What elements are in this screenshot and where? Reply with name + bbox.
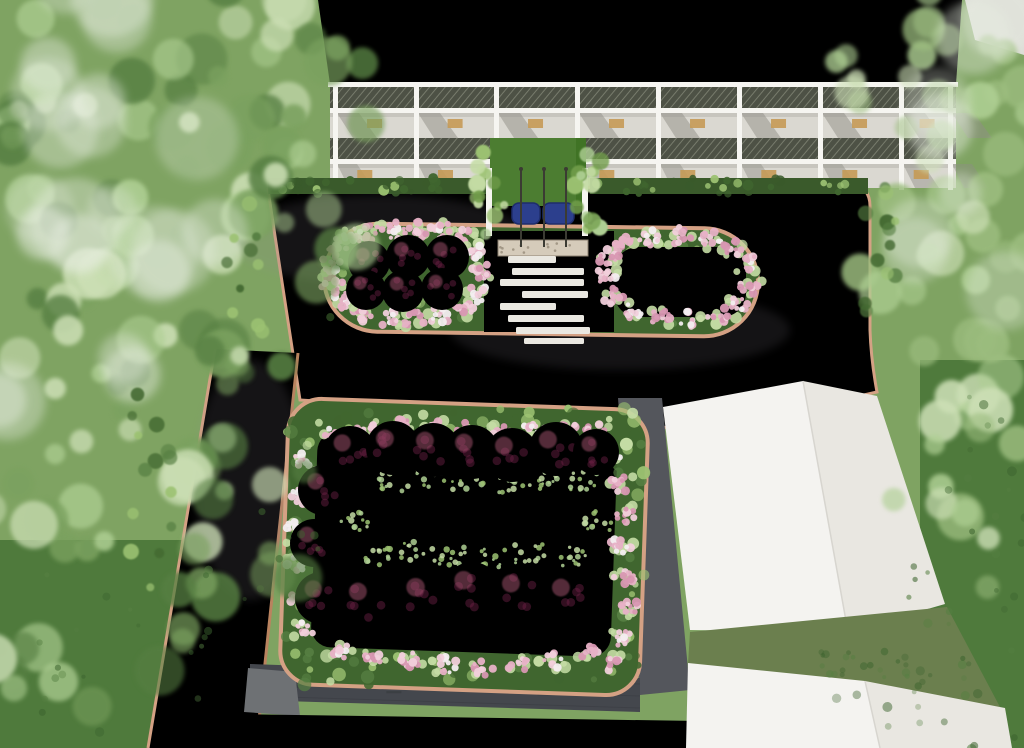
flower-dot [457, 304, 463, 310]
flower-dot [685, 309, 692, 316]
gravel-speck [501, 247, 504, 250]
grass-dot [204, 627, 212, 635]
flower-dot [618, 601, 626, 609]
tree-blob [293, 459, 317, 483]
hedge-dot [395, 176, 404, 185]
tree-blob [909, 336, 939, 366]
window-slot [528, 119, 543, 128]
grass-dot [136, 624, 140, 628]
flower-dot [595, 420, 604, 429]
leaf-dot [422, 483, 426, 487]
hedge-dot [710, 175, 718, 183]
topiary-mottle [428, 596, 437, 605]
leaf-dot [380, 483, 384, 487]
topiary-ball-body [421, 268, 463, 310]
shrub-blob [871, 253, 885, 267]
flower-dot [608, 276, 614, 282]
flower-dot [609, 285, 616, 292]
flower-dot [710, 228, 719, 237]
flower-dot [611, 485, 616, 490]
flower-dot [402, 227, 406, 231]
flower-dot [612, 477, 618, 483]
hedge-dot [820, 180, 827, 187]
flower-dot [394, 319, 398, 323]
flower-dot [675, 239, 682, 246]
leaf-dot [591, 511, 596, 516]
topiary-highlight [429, 275, 443, 289]
grass-dot [128, 607, 132, 611]
shrub-blob [885, 240, 896, 251]
topiary-mottle [587, 461, 594, 468]
topiary-mottle [408, 250, 415, 257]
shrub-blob [255, 324, 269, 338]
tree-blob [306, 192, 342, 228]
leaf-dot [514, 558, 517, 561]
topiary-highlight [433, 242, 448, 257]
grass-dot [55, 665, 61, 671]
flower-dot [752, 254, 757, 259]
topiary-mottle [370, 294, 376, 300]
vine-blob [468, 175, 486, 193]
grass-dot [961, 691, 970, 700]
grass-dot [881, 648, 889, 656]
leaf-dot [609, 521, 613, 525]
hedge-dot [689, 175, 696, 182]
flower-dot [489, 665, 497, 673]
hedge-dot [428, 185, 436, 193]
leaf-dot [514, 561, 517, 564]
shrub-dot [341, 412, 352, 423]
flower-dot [731, 301, 736, 306]
flower-dot [438, 317, 447, 326]
vine-blob [570, 200, 584, 214]
shrub-blob [221, 257, 232, 268]
gravel-speck [554, 249, 557, 252]
shrub-blob [166, 522, 176, 532]
flower-dot [632, 609, 637, 614]
topiary-highlight [376, 430, 394, 448]
leaf-dot [382, 657, 389, 664]
flagpole-finial [542, 167, 546, 171]
topiary-mottle [551, 450, 560, 459]
topiary-mottle [409, 279, 416, 286]
gravel-speck [527, 246, 530, 249]
stepping-stone [512, 268, 584, 275]
flower-dot [637, 237, 642, 242]
flower-dot [387, 316, 391, 320]
grass-dot [1010, 593, 1018, 601]
leaf-dot [421, 476, 427, 482]
flower-dot [544, 652, 550, 658]
shrub-blob [242, 196, 257, 211]
flower-dot [603, 245, 612, 254]
grass-dot [1007, 488, 1011, 492]
grass-dot [969, 529, 975, 535]
grass-dot [853, 691, 862, 700]
grass-dot [202, 634, 208, 640]
leaf-dot [496, 565, 501, 570]
flower-dot [399, 652, 406, 659]
grass-dot [979, 400, 988, 409]
grass-dot [1011, 734, 1018, 741]
flower-dot [335, 646, 344, 655]
tree-blob [230, 346, 249, 365]
leaf-dot [370, 548, 375, 553]
topiary-mottle [576, 593, 585, 602]
shrub-dot [303, 441, 312, 450]
leaf-dot [534, 544, 538, 548]
flower-dot [604, 270, 611, 277]
leaf-dot [463, 551, 467, 555]
tree-blob [94, 531, 114, 551]
flower-dot [529, 423, 535, 429]
shrub-dot [428, 657, 437, 666]
tree-blob [10, 501, 58, 549]
topiary-mottle [435, 261, 442, 268]
vine-blob [476, 145, 491, 160]
rendering-stage [0, 0, 1024, 748]
grass-dot [985, 422, 991, 428]
tree-blob [951, 499, 979, 527]
grass-dot [195, 695, 202, 702]
leaf-dot [340, 520, 343, 523]
topiary-highlight [349, 583, 367, 601]
grass-dot [911, 563, 918, 570]
grass-dot [199, 644, 204, 649]
hedge-dot [409, 189, 414, 194]
window-slot [448, 119, 463, 128]
grass-dot [840, 667, 846, 673]
flower-dot [615, 642, 620, 647]
leaf-dot [608, 528, 612, 532]
flower-dot [572, 422, 578, 428]
hedge-dot [733, 179, 742, 188]
flower-dot [700, 231, 708, 239]
flower-dot [357, 315, 366, 324]
leaf-dot [588, 480, 593, 485]
shrub-dot [635, 662, 642, 669]
leaf-dot [377, 562, 382, 567]
shrub-dot [450, 409, 457, 416]
topiary-ball-body [542, 570, 596, 624]
leaf-dot [359, 511, 364, 516]
leaf-dot [377, 548, 381, 552]
grass-dot [310, 531, 318, 539]
grass-dot [966, 661, 971, 666]
leaf-dot [507, 488, 511, 492]
topiary-mottle [448, 293, 455, 300]
hedge-dot [771, 174, 780, 183]
flower-dot [688, 321, 695, 328]
shrub-dot [637, 466, 650, 479]
topiary-highlight [495, 437, 513, 455]
grass-dot [992, 513, 1000, 521]
flower-dot [678, 228, 686, 236]
topiary-mottle [367, 284, 373, 290]
vine-blob [480, 229, 491, 240]
shrub-blob [134, 431, 142, 439]
flower-dot [474, 668, 481, 675]
grass-dot [945, 486, 953, 494]
leaf-dot [533, 558, 539, 564]
grass-dot [906, 595, 911, 600]
topiary-ball-body [492, 566, 546, 620]
shrub-dot [629, 591, 635, 597]
main-building-roof [318, 0, 962, 84]
flower-dot [608, 656, 613, 661]
topiary-mottle [350, 602, 359, 611]
facade-column [737, 84, 742, 190]
grass-dot [925, 570, 930, 575]
flower-dot [607, 300, 614, 307]
leaf-dot [377, 477, 382, 482]
shrub-dot [332, 668, 346, 682]
shrub-dot [361, 670, 374, 683]
leaf-dot [365, 520, 370, 525]
flower-dot [337, 302, 346, 311]
flower-dot [623, 608, 629, 614]
haze-blob [70, 74, 125, 129]
shrub-blob [165, 486, 176, 497]
hedge-dot [428, 173, 438, 183]
flower-dot [644, 233, 650, 239]
flower-dot [591, 650, 598, 657]
grass-dot [44, 572, 49, 577]
grass-dot [905, 674, 910, 679]
leaf-dot [413, 547, 418, 552]
shrub-blob [138, 463, 152, 477]
tree-blob [267, 352, 295, 380]
leaf-dot [414, 554, 419, 559]
flower-dot [406, 311, 412, 317]
topiary-mottle [317, 602, 325, 610]
shrub-blob [879, 185, 894, 200]
shrub-dot [303, 654, 312, 663]
grass-dot [916, 720, 923, 727]
topiary-mottle [436, 457, 445, 466]
leaf-dot [400, 489, 405, 494]
leaf-dot [492, 553, 498, 559]
grass-dot [896, 659, 901, 664]
shrub-dot [364, 408, 374, 418]
flower-dot [745, 258, 750, 263]
gravel-speck [546, 243, 549, 246]
leaf-dot [346, 516, 350, 520]
flower-dot [739, 306, 745, 312]
leaf-dot [628, 472, 637, 481]
shrub-dot [554, 673, 564, 683]
flower-dot [516, 660, 522, 666]
flower-dot [607, 662, 614, 669]
brick-line [386, 691, 401, 693]
leaf-dot [575, 554, 581, 560]
flower-dot [414, 218, 423, 227]
leaf-dot [577, 477, 582, 482]
topiary-ball [339, 574, 393, 628]
topiary-mottle [567, 598, 576, 607]
leaf-dot [561, 661, 567, 667]
hedge-dot [322, 178, 330, 186]
leaf-dot [451, 480, 454, 483]
tree-blob [170, 629, 195, 654]
tree-blob [924, 434, 944, 454]
leaf-dot [551, 480, 554, 483]
window-slot [771, 119, 786, 128]
stepping-stone [524, 338, 584, 344]
shrub-blob [858, 297, 871, 310]
flagpole-finial [564, 167, 568, 171]
haze-blob [30, 178, 122, 270]
hedge-dot [743, 180, 754, 191]
leaf-dot [348, 647, 356, 655]
flower-dot [679, 321, 683, 325]
stepping-stone [500, 303, 556, 310]
leaf-dot [483, 553, 487, 557]
gravel-speck [523, 251, 526, 254]
flower-dot [431, 317, 435, 321]
leaf-dot [461, 545, 467, 551]
leaf-dot [568, 484, 573, 489]
tree-blob [195, 336, 225, 366]
flower-dot [621, 486, 630, 495]
shrub-dot [627, 408, 638, 419]
topiary-mottle [307, 547, 315, 555]
flower-dot [724, 313, 731, 320]
topiary-highlight [454, 571, 472, 589]
hedge-dot [860, 186, 865, 191]
leaf-dot [385, 485, 388, 488]
flower-dot [451, 657, 460, 666]
grass-dot [882, 675, 886, 679]
shrub-blob [229, 234, 238, 243]
shrub-blob [244, 243, 258, 257]
grass-dot [832, 694, 841, 703]
flower-dot [383, 310, 390, 317]
hedge-dot [670, 178, 677, 185]
flower-dot [521, 660, 527, 666]
upper-planter [317, 217, 766, 344]
flower-dot [623, 629, 628, 634]
shrub-dot [567, 408, 580, 421]
flower-dot [611, 574, 617, 580]
tree-blob [252, 467, 287, 502]
window-slot [842, 170, 857, 179]
flower-dot [755, 282, 762, 289]
grass-dot [903, 662, 908, 667]
flower-dot [326, 426, 332, 432]
grass-dot [901, 654, 908, 661]
hedge-dot [383, 181, 391, 189]
flower-dot [297, 449, 306, 458]
flower-dot [475, 291, 483, 299]
flower-dot [627, 575, 635, 583]
shrub-blob [146, 583, 154, 591]
grass-dot [843, 654, 850, 661]
shrub-blob [252, 232, 261, 241]
flower-dot [440, 668, 447, 675]
facade-column [414, 84, 419, 190]
haze-blob [182, 199, 248, 265]
shrub-blob [154, 548, 164, 558]
flower-dot [630, 309, 635, 314]
window-slot [599, 170, 614, 179]
topiary-highlight [552, 579, 570, 597]
leaf-dot [527, 558, 532, 563]
flower-dot [408, 658, 417, 667]
leaf-dot [403, 542, 406, 545]
leaf-dot [459, 479, 462, 482]
shrub-blob [858, 206, 873, 221]
topiary-mottle [402, 292, 409, 299]
topiary-mottle [450, 246, 457, 253]
tree-blob [976, 575, 1000, 599]
shrub-dot [629, 430, 640, 441]
leaf-dot [569, 476, 575, 482]
flagpole-finial [519, 167, 523, 171]
flower-dot [283, 524, 291, 532]
vine-blob [583, 212, 601, 230]
leaf-dot [518, 549, 524, 555]
stepping-stone [508, 256, 556, 263]
topiary-mottle [414, 253, 421, 260]
tree-blob [53, 315, 83, 345]
topiary-mottle [324, 586, 332, 594]
leaf-dot [386, 556, 391, 561]
grass-dot [915, 704, 921, 710]
topiary-ball [346, 270, 386, 310]
topiary-mottle [377, 601, 386, 610]
flower-dot [413, 227, 420, 234]
flower-dot [505, 664, 513, 672]
shrub-dot [591, 676, 597, 682]
window-slot [357, 170, 372, 179]
topiary-ball [573, 429, 619, 475]
grass-dot [946, 608, 953, 615]
leaf-dot [450, 550, 455, 555]
shrub-blob [236, 285, 244, 293]
flower-dot [598, 279, 602, 283]
flower-dot [390, 312, 396, 318]
shrub-dot [298, 678, 312, 692]
topiary-mottle [320, 487, 328, 495]
hedge-dot [716, 190, 722, 196]
window-slot [438, 170, 453, 179]
flower-dot [745, 266, 753, 274]
flower-dot [389, 236, 393, 240]
hedge-dot [650, 187, 656, 193]
tree-blob [70, 430, 94, 454]
flower-dot [630, 514, 637, 521]
grass-dot [928, 673, 932, 677]
topiary-mottle [346, 455, 354, 463]
facade-column [656, 84, 661, 190]
flower-dot [447, 670, 451, 674]
flower-dot [410, 651, 415, 656]
tree-blob [333, 223, 380, 270]
topiary-mottle [493, 456, 502, 465]
flower-dot [743, 300, 751, 308]
tree-blob [153, 39, 194, 80]
flower-dot [446, 228, 453, 235]
leaf-dot [422, 552, 426, 556]
leaf-dot [594, 518, 599, 523]
vine-blob [487, 207, 504, 224]
leaf-dot [443, 546, 449, 552]
flower-dot [406, 225, 413, 232]
tree-blob [825, 50, 848, 73]
stepping-stone [522, 291, 588, 298]
grass-dot [960, 656, 965, 661]
